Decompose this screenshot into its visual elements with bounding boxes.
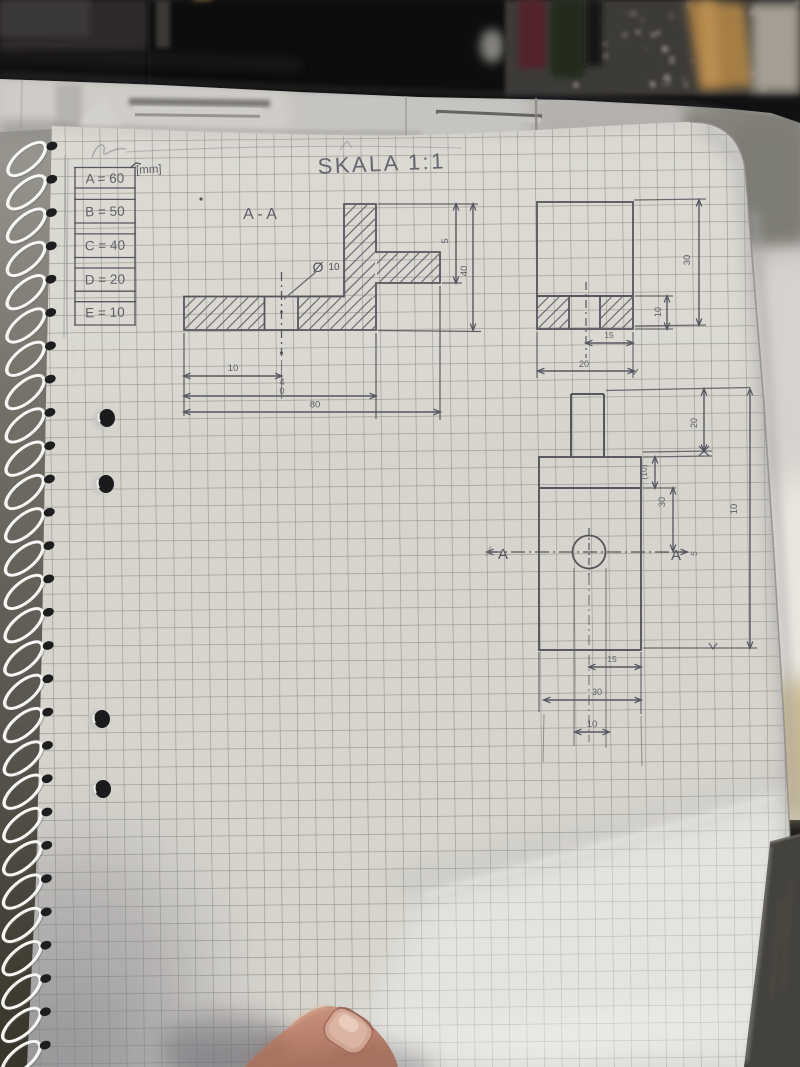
svg-text:A: A xyxy=(498,546,508,563)
svg-text:15: 15 xyxy=(607,654,617,664)
svg-text:40: 40 xyxy=(459,266,470,277)
svg-text:0: 0 xyxy=(279,386,284,396)
svg-text:10: 10 xyxy=(328,262,340,273)
svg-text:10: 10 xyxy=(228,363,239,374)
svg-text:30: 30 xyxy=(657,497,667,507)
svg-text:A - A: A - A xyxy=(243,206,277,223)
svg-text:10: 10 xyxy=(587,719,598,730)
svg-text:15: 15 xyxy=(604,330,614,340)
svg-text:5: 5 xyxy=(440,238,451,243)
svg-text:30: 30 xyxy=(682,255,693,266)
svg-text:Ø: Ø xyxy=(313,259,324,275)
svg-text:20: 20 xyxy=(579,359,589,369)
svg-text:80: 80 xyxy=(310,400,321,411)
svg-text:(10): (10) xyxy=(639,464,649,479)
svg-text:C = 40: C = 40 xyxy=(85,238,125,254)
svg-text:E = 10: E = 10 xyxy=(85,305,125,321)
svg-text:A = 60: A = 60 xyxy=(85,171,124,187)
svg-text:10: 10 xyxy=(729,504,740,515)
svg-text:[mm]: [mm] xyxy=(136,163,162,176)
svg-text:20: 20 xyxy=(689,418,699,428)
svg-text:B = 50: B = 50 xyxy=(85,204,125,220)
svg-text:D = 20: D = 20 xyxy=(85,272,125,288)
svg-text:10: 10 xyxy=(653,307,663,317)
svg-text:30: 30 xyxy=(592,687,602,697)
